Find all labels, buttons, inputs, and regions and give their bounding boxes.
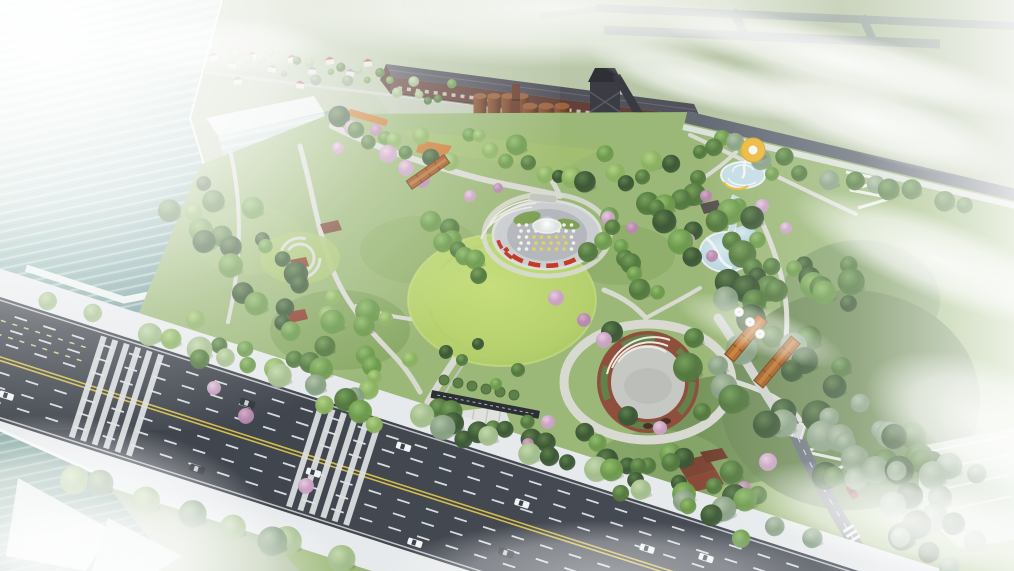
tree bbox=[298, 478, 314, 494]
plaza-dot bbox=[570, 235, 574, 239]
tree bbox=[683, 247, 703, 267]
tree bbox=[578, 242, 598, 262]
tree bbox=[650, 285, 665, 300]
plaza-dot bbox=[562, 223, 566, 227]
tree bbox=[612, 485, 629, 502]
tree bbox=[454, 430, 472, 448]
tree bbox=[661, 453, 680, 472]
plaza-dot bbox=[562, 247, 566, 251]
tree bbox=[540, 447, 559, 466]
rendering-canvas bbox=[0, 0, 1014, 571]
rendering-stage bbox=[0, 0, 1014, 571]
amphitheater-court bbox=[624, 368, 672, 404]
plaza-dot bbox=[572, 229, 576, 233]
tree bbox=[518, 443, 540, 465]
tree bbox=[680, 498, 696, 514]
tree bbox=[673, 353, 703, 383]
tree bbox=[577, 313, 591, 327]
tree bbox=[629, 279, 651, 301]
tree bbox=[594, 232, 612, 250]
plaza-dot bbox=[570, 247, 574, 251]
tree bbox=[618, 406, 638, 426]
tree bbox=[635, 169, 650, 184]
tree bbox=[652, 209, 676, 233]
tree bbox=[653, 421, 667, 435]
tree bbox=[631, 479, 652, 500]
tree bbox=[574, 171, 596, 193]
plaza-dot bbox=[564, 241, 568, 245]
tree bbox=[559, 454, 575, 470]
plaza-dot bbox=[564, 229, 568, 233]
tree bbox=[641, 151, 662, 172]
tree bbox=[662, 155, 680, 173]
plaza-dot bbox=[572, 241, 576, 245]
tree bbox=[630, 458, 647, 475]
tree bbox=[605, 219, 621, 235]
tree bbox=[626, 222, 638, 234]
tree bbox=[597, 145, 614, 162]
plaza-dot bbox=[562, 235, 566, 239]
tree bbox=[600, 458, 623, 481]
plaza-dot bbox=[570, 223, 574, 227]
tree bbox=[596, 332, 612, 348]
tree bbox=[618, 175, 634, 191]
